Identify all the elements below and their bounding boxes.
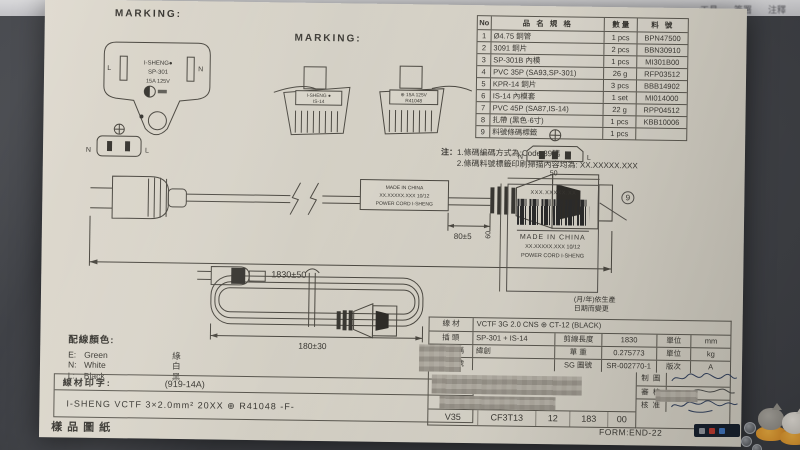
- footer-code: 183: [570, 411, 608, 427]
- label-power-cord: POWER CORD I-SHENG: [508, 253, 598, 260]
- floating-toolbar-icon[interactable]: [709, 428, 715, 434]
- bom-cell: 2 pcs: [604, 44, 637, 55]
- label-dim-width: 50: [508, 170, 600, 178]
- bom-header-pn: 料 號: [638, 18, 688, 32]
- marking-label-plug: MARKING:: [115, 8, 182, 20]
- bom-cell: IS-14 內模套: [491, 90, 604, 103]
- bom-cell: RPP04512: [637, 104, 687, 116]
- marking-label-connector: MARKING:: [294, 33, 361, 45]
- plug-face-rating: 15A 125V: [146, 79, 170, 85]
- conn-marking-label2-line2: R41048: [405, 98, 422, 104]
- cord-print-box: 線材印字: (919-14A) I-SHENG VCTF 3×2.0mm² 20…: [53, 373, 474, 423]
- floating-toolbar-icon[interactable]: [699, 428, 705, 434]
- bom-cell: RFP03512: [637, 68, 687, 80]
- bom-cell: 8: [476, 114, 490, 125]
- spec-weight-value: 0.275773: [602, 347, 657, 360]
- bom-cell: 6: [477, 90, 491, 101]
- wire-colors-title: 配線顏色:: [68, 335, 298, 349]
- wire-color-cn: 白: [172, 361, 181, 372]
- bom-cell: PVC 45P (SA87,IS-14): [491, 102, 604, 115]
- conn-marking-label1-line1: I-SHENG ●: [307, 93, 331, 99]
- footer-codes-row: V35 CF3T13 12 183 00: [428, 409, 635, 428]
- bom-cell: 2: [477, 42, 491, 53]
- drawing-sheet: MARKING: L N I-SHENG● SP-301 15A 125V MA…: [39, 0, 747, 447]
- spec-unit2-value: kg: [691, 348, 730, 361]
- spec-unit1-label: 單位: [657, 335, 692, 347]
- sig-draw-label: 制 圖: [637, 372, 667, 385]
- spec-plug-value: SP-301 + IS-14: [473, 332, 556, 345]
- conn-marking-label1-line2: IS-14: [313, 99, 325, 105]
- bom-cell: [636, 128, 686, 140]
- bom-cell: Ø4.75 銅管: [492, 30, 605, 43]
- bom-cell: 7: [477, 102, 491, 113]
- overlay-orb-icon[interactable]: [752, 444, 762, 450]
- footer-code: CF3T13: [478, 410, 536, 426]
- bom-cell: BBN30910: [637, 44, 687, 56]
- print-line: I-SHENG VCTF 3×2.0mm² 20XX ⊕ R41048 -F-: [54, 390, 472, 422]
- coil-connector: [336, 303, 396, 338]
- toolbar-item-comment[interactable]: 注釋: [768, 3, 786, 16]
- bom-table: No 品 名 規 格 數 量 料 號 1Ø4.75 銅管1 pcsBPN4750…: [475, 15, 689, 141]
- print-label: 線材印字:: [55, 374, 165, 391]
- bom-cell: 3: [477, 54, 491, 65]
- bom-cell: PVC 35P (SA93,SP-301): [491, 66, 604, 79]
- plug-front-view: N L: [86, 124, 150, 157]
- spec-sg-value: SR-002770-1: [602, 360, 657, 373]
- redaction-block: [656, 390, 698, 403]
- spec-unit1-value: mm: [692, 335, 731, 348]
- callout-9: 9: [621, 191, 634, 204]
- bom-cell: BBB14902: [637, 80, 687, 92]
- dim-180: 180±30: [298, 341, 327, 351]
- redaction-block: [419, 344, 461, 372]
- plug-face-n: N: [198, 66, 203, 73]
- bom-cell: 1 pcs: [604, 56, 637, 67]
- plug-face-model: SP-301: [148, 70, 169, 76]
- plug-slot-right: [187, 57, 194, 81]
- label-made-in-china: MADE IN CHINA: [508, 234, 598, 242]
- floating-toolbar-icon[interactable]: [719, 428, 725, 434]
- bom-cell: 3 pcs: [604, 80, 637, 91]
- conn-marking-label2-line1: ⊕ 15A 125V: [401, 92, 428, 98]
- overlay-orb-icon[interactable]: [744, 422, 756, 434]
- redaction-block: [432, 375, 582, 396]
- connector-front-view: N L: [518, 129, 591, 162]
- bom-cell: KBB10006: [636, 116, 686, 128]
- bom-cell: BPN47500: [638, 32, 688, 44]
- conn-front-l: L: [587, 155, 591, 162]
- bom-cell: SP-301B 內模: [491, 54, 604, 67]
- label-dim-height: 60: [485, 231, 492, 239]
- spec-table: 線 材 VCTF 3G 2.0 CNS ⊕ CT-12 (BLACK) 插 頭 …: [427, 317, 731, 430]
- callout-leader-line: [599, 202, 626, 220]
- print-code: (919-14A): [165, 376, 205, 392]
- label-pn-text: XXX.XXXXX.XX: [508, 190, 598, 197]
- barcode-label-detail: 50 60 XXX.XXXXX.XX MADE IN CHINA XX.XXXX…: [478, 171, 650, 309]
- barcode: [517, 199, 589, 226]
- spec-sg-label: SG 圖號: [555, 359, 602, 372]
- wire-code: E:: [68, 349, 84, 360]
- flag-line-1: MADE IN CHINA: [386, 185, 425, 192]
- flag-line-3: POWER CORD I-SHENG: [376, 201, 433, 208]
- plug-face-l: L: [107, 65, 111, 72]
- monitor-photo: 工具 簽署 注釋 MARKING: L N I-SHENG● SP-301 15…: [0, 0, 800, 450]
- form-number: FORM:END-22: [599, 427, 662, 438]
- flag-line-2: XX.XXXXX.XXX 10/12: [379, 193, 429, 200]
- conn-front-n: N: [518, 154, 523, 161]
- bom-cell: 1 set: [604, 92, 637, 103]
- dim-80: 80±5: [454, 232, 472, 241]
- footer-code: V35: [428, 410, 478, 426]
- plug-front-l: L: [145, 148, 149, 155]
- bom-header-qty: 數 量: [605, 18, 638, 31]
- bom-header-name: 品 名 規 格: [492, 16, 605, 31]
- floating-toolbar[interactable]: [694, 424, 740, 437]
- spec-weight-label: 單 重: [555, 346, 602, 359]
- spec-name-value: 緯創: [473, 345, 556, 358]
- bom-cell: 4: [477, 66, 491, 77]
- cable-flag-label: MADE IN CHINA XX.XXXXX.XXX 10/12 POWER C…: [360, 180, 448, 211]
- overlay-orb-icon[interactable]: [741, 436, 752, 447]
- bom-cell: 3091 銅片: [491, 42, 604, 55]
- cable-break-icon: [308, 183, 318, 215]
- bom-cell: 1 pcs: [603, 116, 636, 127]
- plug-side-view: [90, 176, 187, 219]
- redaction-block: [439, 396, 555, 411]
- bom-cell: 1 pcs: [605, 32, 638, 43]
- cat-sticker-white: [782, 412, 800, 445]
- cable-tie: [305, 269, 320, 327]
- plug-front-n: N: [86, 147, 91, 154]
- bom-cell: MI014000: [637, 92, 687, 104]
- plug-face-brand: I-SHENG●: [144, 61, 173, 67]
- spec-cutlen-label: 剪線長度: [555, 333, 602, 346]
- bom-cell: KPR-14 銅片: [491, 78, 604, 91]
- sheet-title: 樣品圖紙: [51, 418, 115, 435]
- wire-code: N:: [68, 359, 84, 370]
- bom-cell: 22 g: [604, 104, 637, 115]
- spec-cutlen-value: 1830: [602, 334, 657, 347]
- bom-cell: 26 g: [604, 68, 637, 79]
- bom-cell: 5: [477, 78, 491, 89]
- cable-break-icon: [290, 183, 300, 215]
- spec-wire-label: 線 材: [430, 318, 474, 332]
- spec-pn-value: [473, 358, 556, 371]
- bom-cell: MI301B00: [637, 56, 687, 68]
- label-pn-date: XX.XXXXX.XXX 10/12: [508, 244, 598, 251]
- spec-unit2-label: 單位: [657, 348, 692, 360]
- footer-code: 12: [536, 411, 570, 426]
- bom-header-no: No: [478, 16, 492, 29]
- wire-color-cn: 綠: [172, 350, 181, 361]
- barcode-label-box: XXX.XXXXX.XX MADE IN CHINA XX.XXXXX.XXX …: [506, 184, 599, 293]
- label-note-line2: 日期而變更: [574, 305, 664, 315]
- spec-plug-label: 插 頭: [429, 332, 473, 345]
- footer-code: 00: [608, 412, 635, 427]
- bom-cell: 1: [478, 30, 492, 41]
- plug-slot-left: [120, 56, 127, 80]
